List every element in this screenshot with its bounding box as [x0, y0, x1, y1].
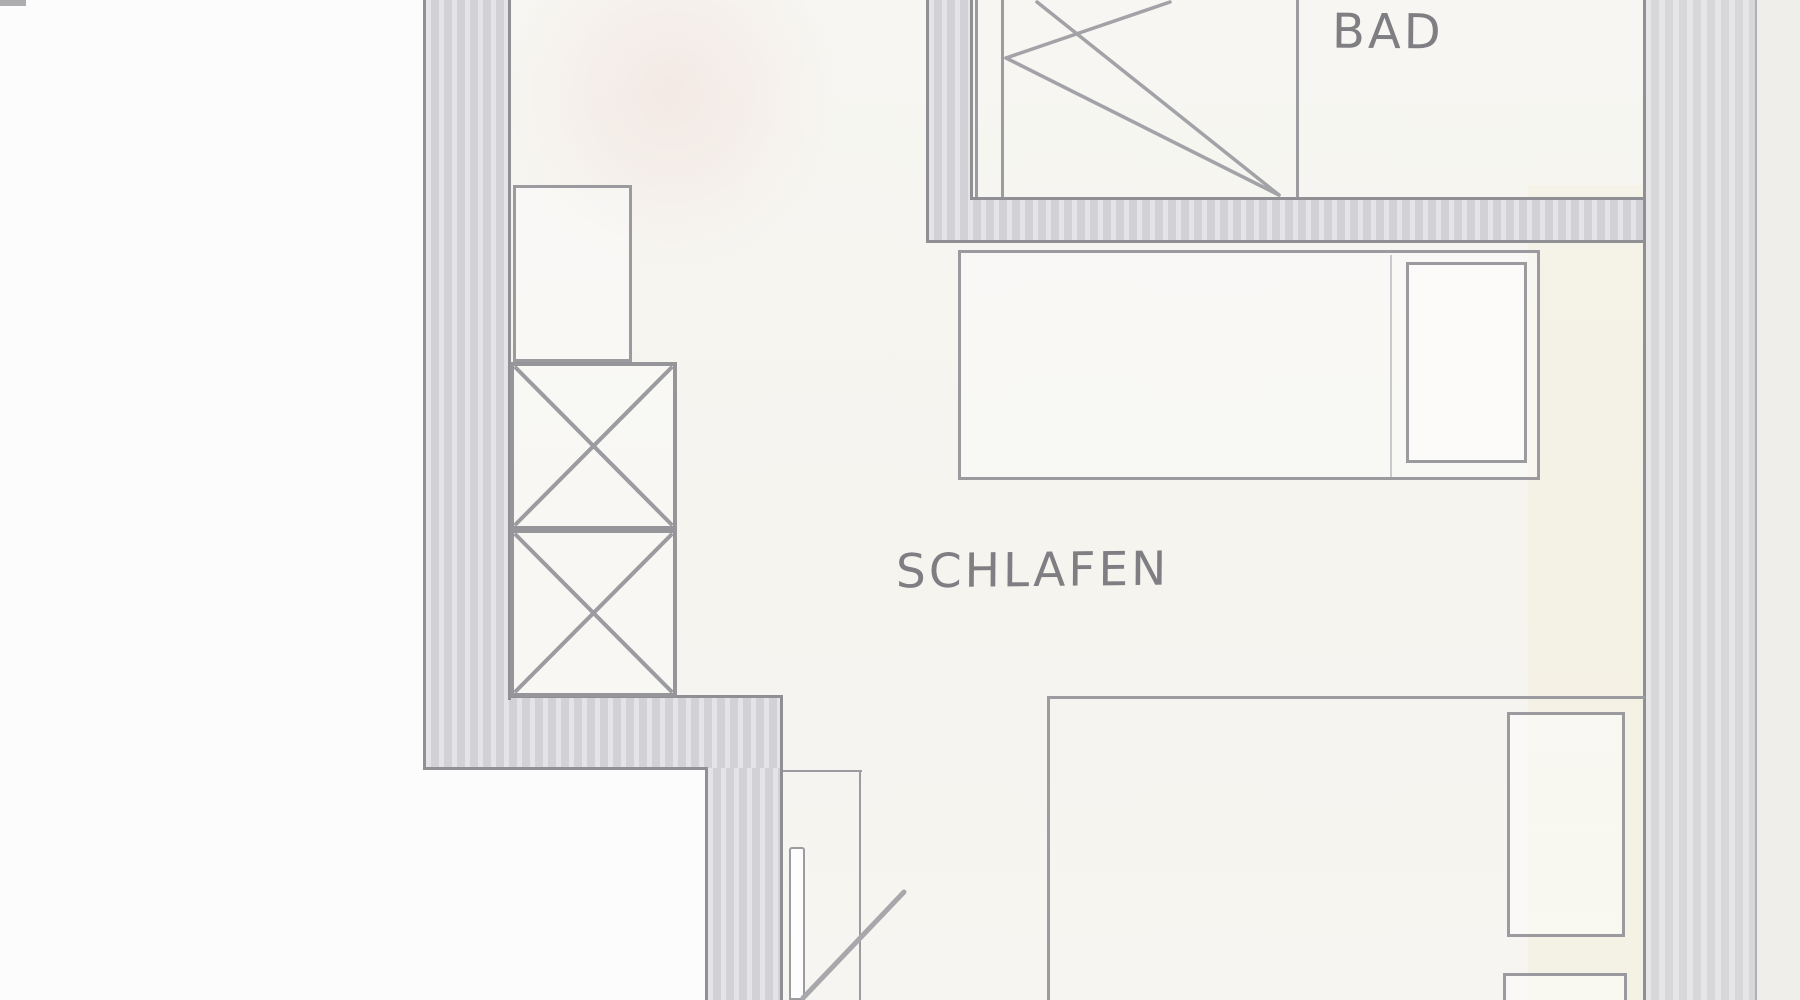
bed-lower-left-edge — [1047, 696, 1050, 1000]
bathtub-right-edge — [1296, 0, 1299, 197]
wardrobe-xbox-1 — [510, 362, 677, 530]
door-frame-top-line — [783, 770, 862, 772]
bathroom-bottom-wall-bottom-edge — [926, 240, 1645, 243]
bathtub-diagonal-1 — [1037, 2, 1279, 195]
room-label-bad: BAD — [1332, 4, 1444, 61]
lower-center-wall — [708, 768, 780, 1000]
outside-area-bottom-left — [0, 770, 705, 1000]
bed-upper-pillow — [1406, 262, 1527, 463]
left-wall — [426, 0, 508, 770]
wardrobe-xbox-2 — [510, 529, 677, 697]
door-frame-right-line — [859, 770, 861, 1000]
scan-edge-strip — [1757, 0, 1800, 1000]
bathtub-left-edge-outer — [975, 0, 978, 197]
door-leaf — [789, 847, 805, 1000]
bathroom-bottom-wall-top-edge — [970, 197, 1645, 200]
floor-plan-canvas: SCHLAFEN BAD — [0, 0, 1800, 1000]
right-wall-inner-edge — [1643, 0, 1646, 1000]
door-swing-line — [803, 892, 904, 998]
bathroom-bottom-wall — [929, 200, 1645, 240]
right-wall-outer-edge — [1755, 0, 1757, 1000]
bed-lower-pillow-2 — [1503, 973, 1627, 1000]
room-label-schlafen: SCHLAFEN — [896, 542, 1170, 600]
bathtub-left-edge-inner — [1001, 0, 1004, 197]
scan-artifact-mark — [0, 0, 26, 6]
bed-lower-top-edge — [1047, 696, 1645, 699]
bed-lower-pillow-1 — [1507, 712, 1625, 937]
left-step-wall — [426, 697, 780, 768]
bed-upper-fold-line — [1390, 255, 1392, 477]
bathtub-diagonal-2 — [1006, 58, 1279, 195]
lower-wall-left-edge — [705, 767, 708, 1000]
step-wall-bottom-edge — [423, 767, 708, 770]
right-wall — [1645, 0, 1757, 1000]
bathroom-wall-inner-edge — [970, 0, 973, 200]
lower-wall-right-edge — [780, 695, 783, 1000]
bathtub-diagonal-3 — [1006, 2, 1170, 58]
shelf — [513, 185, 632, 362]
bathroom-wall-outer-edge — [926, 0, 929, 242]
left-wall-outer-edge — [423, 0, 426, 770]
